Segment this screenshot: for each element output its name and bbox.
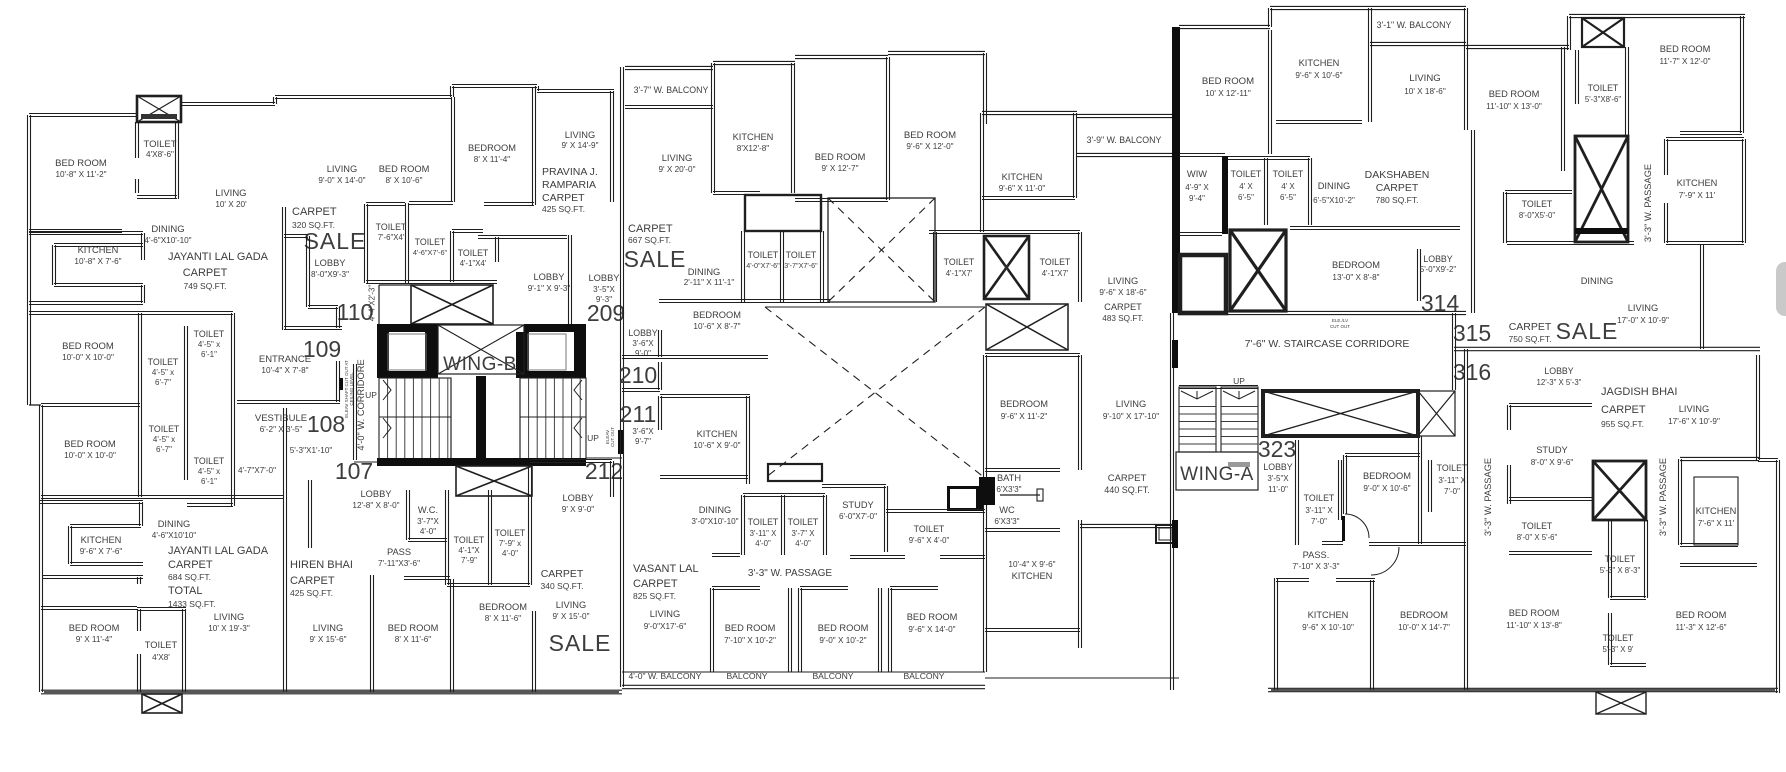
svg-text:BALCONY: BALCONY [726,671,767,681]
svg-text:9'-0" X 10'-6": 9'-0" X 10'-6" [1363,484,1410,493]
svg-text:LOBBY: LOBBY [628,328,657,338]
svg-text:3'-7"X7'-6": 3'-7"X7'-6" [784,261,818,270]
svg-text:WC: WC [999,505,1015,515]
svg-text:6'-1": 6'-1" [201,350,217,359]
svg-text:TOILET: TOILET [1522,199,1553,209]
svg-text:LIVING: LIVING [327,164,357,174]
svg-text:9' X 20'-0": 9' X 20'-0" [659,165,696,174]
svg-text:210: 210 [619,362,657,388]
svg-text:CARPET: CARPET [541,568,584,580]
svg-text:JAGDISH BHAI: JAGDISH BHAI [1601,386,1677,398]
svg-text:10'-8" X 11'-2": 10'-8" X 11'-2" [55,170,106,179]
svg-text:6'-7": 6'-7" [155,378,171,387]
svg-text:315: 315 [1453,320,1491,346]
svg-text:9'-6" X 7'-6": 9'-6" X 7'-6" [80,547,123,556]
svg-text:4'-4"X2'-3": 4'-4"X2'-3" [368,285,377,321]
svg-text:BED ROOM: BED ROOM [904,130,956,141]
svg-text:KITCHEN: KITCHEN [1677,178,1718,188]
svg-text:9'-4": 9'-4" [1189,194,1205,203]
svg-text:4'-5" x: 4'-5" x [198,467,220,476]
svg-text:SALE: SALE [624,246,687,272]
svg-text:TOILET: TOILET [458,248,489,258]
svg-text:3'-11" X: 3'-11" X [1438,476,1466,485]
svg-text:STUDY: STUDY [1536,445,1568,455]
svg-text:LIVING: LIVING [565,130,595,140]
svg-text:6'X3'3": 6'X3'3" [996,485,1021,494]
svg-text:TOILET: TOILET [748,517,779,527]
svg-text:BEDROOM: BEDROOM [693,310,741,320]
svg-text:LIVING: LIVING [214,612,244,622]
svg-text:9'-6" X 10'-10": 9'-6" X 10'-10" [1302,623,1354,632]
svg-text:8'-0" X 5'-6": 8'-0" X 5'-6" [1517,533,1558,542]
svg-text:212: 212 [585,458,623,484]
svg-text:9'-6" X 11'-2": 9'-6" X 11'-2" [1001,412,1048,421]
svg-text:11'-3" X 12'-6": 11'-3" X 12'-6" [1675,623,1726,632]
svg-text:BED ROOM: BED ROOM [1676,610,1727,620]
svg-text:10'-6" X 8'-7": 10'-6" X 8'-7" [693,322,740,331]
svg-text:BED ROOM: BED ROOM [379,164,430,174]
svg-text:3'-6"X: 3'-6"X [632,339,654,348]
svg-text:CARPET: CARPET [168,559,213,571]
svg-text:W.C.: W.C. [418,505,438,515]
svg-text:6'X3'3": 6'X3'3" [994,517,1019,526]
svg-text:TOILET: TOILET [944,257,975,267]
svg-text:17'-6" X 10'-9": 17'-6" X 10'-9" [1668,417,1720,426]
svg-text:LOBBY: LOBBY [360,489,391,499]
svg-text:9' X 14'-9": 9' X 14'-9" [562,141,599,150]
svg-text:CARPET: CARPET [1601,404,1646,416]
svg-text:ELE./LV: ELE./LV [1332,318,1348,323]
svg-text:10'-0" X 14'-7": 10'-0" X 14'-7" [1398,623,1450,632]
svg-text:BEDROOM: BEDROOM [1400,610,1448,620]
svg-text:3'-7" X: 3'-7" X [792,529,816,538]
svg-text:9'-10" X 17'-10": 9'-10" X 17'-10" [1103,412,1159,421]
svg-text:6'-5": 6'-5" [1280,193,1296,202]
svg-text:4'X8'-6": 4'X8'-6" [146,150,174,159]
svg-text:CARPET: CARPET [628,223,673,235]
svg-text:CARPET: CARPET [183,267,228,279]
svg-text:TOILET: TOILET [1603,633,1634,643]
svg-text:3'-7"X: 3'-7"X [417,517,439,526]
svg-text:KITCHEN: KITCHEN [1696,506,1737,516]
svg-text:X: X [1003,263,1009,273]
svg-text:SALE: SALE [549,630,612,656]
svg-text:DAKSHABEN: DAKSHABEN [1365,169,1430,181]
svg-text:3'-11" X: 3'-11" X [750,529,777,538]
svg-text:10'-6" X 9'-0": 10'-6" X 9'-0" [693,441,740,450]
svg-text:11'-7" X 12'-0": 11'-7" X 12'-0" [1659,57,1710,66]
svg-text:CARPET: CARPET [542,192,585,204]
svg-text:9' X 15'-6": 9' X 15'-6" [310,635,347,644]
svg-text:LOBBY: LOBBY [1263,462,1292,472]
svg-text:TOILET: TOILET [454,535,485,545]
svg-text:LOBBY: LOBBY [588,273,619,283]
svg-text:TOILET: TOILET [1588,83,1619,93]
svg-text:LIVING: LIVING [215,188,246,199]
svg-text:TOILET: TOILET [495,528,526,538]
svg-text:4'-5" x: 4'-5" x [153,435,175,444]
svg-text:5'-0"X9'-2": 5'-0"X9'-2" [1420,265,1456,274]
svg-text:109: 109 [303,336,341,362]
svg-text:UP: UP [587,433,599,443]
svg-text:CARPET: CARPET [633,578,678,590]
svg-text:BALCONY: BALCONY [812,671,853,681]
svg-text:BED ROOM: BED ROOM [907,612,958,622]
svg-text:8'-0" X 9'-6": 8'-0" X 9'-6" [1531,458,1574,467]
svg-text:TOILET: TOILET [1273,169,1304,179]
svg-text:WING-A: WING-A [1180,464,1254,485]
svg-text:9'-0" X 14'-0": 9'-0" X 14'-0" [318,176,365,185]
svg-text:5'-3"X8'-6": 5'-3"X8'-6" [1585,95,1621,104]
svg-text:BEDROOM: BEDROOM [1363,471,1411,481]
svg-text:BED ROOM: BED ROOM [725,623,776,633]
svg-text:TOILET: TOILET [1231,169,1262,179]
svg-text:BED ROOM: BED ROOM [55,158,107,169]
svg-text:9' X 11'-4": 9' X 11'-4" [76,635,112,644]
svg-text:6'-0"X7'-0": 6'-0"X7'-0" [839,512,877,521]
svg-text:LIVING: LIVING [1409,73,1440,84]
svg-text:TOILET: TOILET [914,524,945,534]
svg-text:9'-6" X 11'-0": 9'-6" X 11'-0" [999,184,1046,193]
svg-text:10' X 12'-11": 10' X 12'-11" [1205,89,1251,98]
svg-text:11'-0": 11'-0" [1268,485,1288,494]
svg-text:9'-0" X 10'-2": 9'-0" X 10'-2" [819,636,866,645]
svg-text:4'-0": 4'-0" [420,527,436,536]
svg-text:HIREN BHAI: HIREN BHAI [290,559,353,571]
svg-text:6'-5"X10'-2": 6'-5"X10'-2" [1313,196,1355,205]
svg-text:BED ROOM: BED ROOM [62,341,114,352]
svg-text:PASS.: PASS. [1303,550,1330,560]
svg-text:6'-5": 6'-5" [1238,193,1254,202]
svg-text:DINING: DINING [699,505,732,515]
svg-text:9'-7": 9'-7" [635,437,651,446]
svg-text:667 SQ.FT.: 667 SQ.FT. [628,235,671,245]
svg-text:4'-1"X4': 4'-1"X4' [460,259,487,268]
svg-text:3'-11" X: 3'-11" X [1305,506,1333,515]
svg-text:TOILET: TOILET [149,424,180,434]
svg-text:3'-6"X: 3'-6"X [632,427,654,436]
svg-text:3'-3" W. PASSAGE: 3'-3" W. PASSAGE [1643,164,1653,242]
svg-text:4'-0": 4'-0" [502,549,518,558]
svg-text:LIVING: LIVING [1628,303,1658,313]
svg-text:2'-11" X 11'-1": 2'-11" X 11'-1" [684,278,735,287]
svg-text:9'-6" X 10'-6": 9'-6" X 10'-6" [1295,71,1342,80]
svg-text:JAYANTI LAL GADA: JAYANTI LAL GADA [168,545,269,557]
svg-text:316: 316 [1453,359,1491,385]
svg-text:323: 323 [1258,436,1296,462]
svg-text:3'-7" W. BALCONY: 3'-7" W. BALCONY [634,85,709,95]
svg-text:SALE: SALE [304,228,367,254]
svg-text:3'-3" W. PASSAGE: 3'-3" W. PASSAGE [1658,458,1668,536]
svg-text:BED ROOM: BED ROOM [1202,76,1254,87]
svg-text:KITCHEN: KITCHEN [1012,571,1053,581]
svg-text:955 SQ.FT.: 955 SQ.FT. [1601,419,1644,429]
svg-text:DINING: DINING [151,224,184,235]
svg-text:10'-4" X 7'-8": 10'-4" X 7'-8" [261,366,308,375]
svg-text:10' X 20': 10' X 20' [215,200,247,209]
svg-text:RAMPARIA: RAMPARIA [542,179,596,191]
svg-text:4'-0" W. BALCONY: 4'-0" W. BALCONY [629,671,702,681]
svg-text:9'-1" X 9'-3": 9'-1" X 9'-3" [528,284,571,293]
svg-text:108: 108 [307,411,345,437]
svg-text:9' X 9'-0": 9' X 9'-0" [562,505,595,514]
svg-text:CUT OUT: CUT OUT [1330,324,1350,329]
svg-text:4'X8': 4'X8' [152,653,170,662]
svg-text:LIVING: LIVING [313,623,343,633]
svg-text:4'-6"X10'-10": 4'-6"X10'-10" [144,236,191,245]
svg-text:LOBBY: LOBBY [533,272,564,282]
svg-text:4'-0"X7'-6": 4'-0"X7'-6" [746,261,780,270]
svg-text:BEDROOM: BEDROOM [468,143,516,153]
svg-text:TOILET: TOILET [148,357,179,367]
svg-text:750 SQ.FT.: 750 SQ.FT. [1509,334,1552,344]
svg-text:7'-10" X 3'-3": 7'-10" X 3'-3" [1292,562,1339,571]
svg-text:LOBBY: LOBBY [1544,366,1573,376]
svg-text:10' X 18'-6": 10' X 18'-6" [1404,87,1446,96]
svg-text:TOILET: TOILET [788,517,819,527]
svg-text:BED ROOM: BED ROOM [1509,608,1560,618]
svg-text:7'-6" X 11': 7'-6" X 11' [1698,519,1735,528]
svg-text:3'-3" W. PASSAGE: 3'-3" W. PASSAGE [1483,458,1493,536]
svg-text:TOILET: TOILET [748,250,779,260]
svg-text:8' X 11'-6": 8' X 11'-6" [485,614,521,623]
svg-text:7'-9": 7'-9" [461,556,477,565]
svg-text:7'-0": 7'-0" [1444,487,1460,496]
svg-text:3'-5"X: 3'-5"X [593,285,615,294]
svg-text:8' X 11'-4": 8' X 11'-4" [474,155,510,164]
svg-text:5'-3"X1'-10": 5'-3"X1'-10" [290,446,333,455]
svg-text:11'-10" X 13'-8": 11'-10" X 13'-8" [1506,621,1562,630]
svg-text:9' X 15'-0": 9' X 15'-0" [553,612,590,621]
svg-text:4'-9" X: 4'-9" X [1185,183,1209,192]
svg-text:KITCHEN: KITCHEN [81,535,122,545]
svg-text:BED ROOM: BED ROOM [388,623,439,633]
svg-text:10'-8" X 7'-6": 10'-8" X 7'-6" [74,257,121,266]
svg-text:12'-8" X 8'-0": 12'-8" X 8'-0" [352,501,399,510]
svg-text:9'-6" X 12'-0": 9'-6" X 12'-0" [906,142,953,151]
svg-text:TOILET: TOILET [143,139,176,150]
svg-text:SALE: SALE [1556,318,1619,344]
svg-text:9'-6" X 14'-0": 9'-6" X 14'-0" [908,625,955,634]
svg-text:KITCHEN: KITCHEN [1299,58,1340,68]
svg-text:STUDY: STUDY [842,500,874,510]
svg-text:TOILET: TOILET [1605,554,1636,564]
svg-text:3'-0"X10'-10": 3'-0"X10'-10" [691,517,738,526]
svg-text:3'-5"X: 3'-5"X [1267,474,1289,483]
svg-text:749 SQ.FT.: 749 SQ.FT. [184,281,227,291]
svg-text:825 SQ.FT.: 825 SQ.FT. [633,591,676,601]
svg-text:440 SQ.FT.: 440 SQ.FT. [1104,485,1150,495]
svg-text:BEDROOM: BEDROOM [1332,260,1380,270]
svg-text:DINING: DINING [1581,276,1614,286]
svg-text:LIVING: LIVING [556,600,586,610]
svg-text:7'-9" X 11': 7'-9" X 11' [1679,191,1716,200]
svg-text:7'-0": 7'-0" [1311,517,1327,526]
svg-text:KITCHEN: KITCHEN [733,132,774,142]
svg-text:BED ROOM: BED ROOM [69,623,120,633]
svg-text:7'-6"X4': 7'-6"X4' [378,233,405,242]
svg-text:7'-6" W. STAIRCASE CORRIDORE: 7'-6" W. STAIRCASE CORRIDORE [1245,338,1410,350]
svg-text:TOILET: TOILET [194,329,225,339]
svg-text:11'-10" X 13'-0": 11'-10" X 13'-0" [1486,102,1542,111]
svg-text:209: 209 [587,300,625,326]
svg-text:6'-2" X 3'-5": 6'-2" X 3'-5" [260,425,303,434]
svg-text:483 SQ.FT.: 483 SQ.FT. [1102,314,1143,323]
svg-text:PRAVINA J.: PRAVINA J. [542,166,598,178]
svg-text:7'-11"X3'-6": 7'-11"X3'-6" [378,559,420,568]
svg-text:CARPET: CARPET [1376,182,1419,194]
svg-text:8' X 11'-6": 8' X 11'-6" [395,635,431,644]
svg-text:BEDROOM: BEDROOM [479,602,527,612]
svg-text:4'-7"X7'-0": 4'-7"X7'-0" [238,466,276,475]
svg-text:211: 211 [620,401,657,427]
svg-text:DINING: DINING [158,519,191,529]
svg-text:9'-0": 9'-0" [635,349,651,358]
svg-text:7'-9" x: 7'-9" x [499,539,521,548]
svg-text:DINING: DINING [1318,181,1351,191]
svg-text:5'-3" X 8'-3": 5'-3" X 8'-3" [1600,566,1641,575]
svg-text:3'-3" W. PASSAGE: 3'-3" W. PASSAGE [748,568,833,579]
svg-text:4'-1"X7': 4'-1"X7' [946,269,973,278]
svg-text:BED ROOM: BED ROOM [818,623,869,633]
svg-text:LIVING: LIVING [1116,399,1146,409]
svg-text:3'-9" W. BALCONY: 3'-9" W. BALCONY [1087,135,1162,145]
svg-text:9'-6" X 18'-6": 9'-6" X 18'-6" [1099,288,1146,297]
svg-text:4'-5" x: 4'-5" x [152,368,174,377]
svg-text:TOILET: TOILET [194,456,225,466]
svg-text:WIW: WIW [1187,169,1207,179]
svg-text:9'-6" X 4'-0": 9'-6" X 4'-0" [909,536,950,545]
svg-text:12'-3" X 5'-3": 12'-3" X 5'-3" [1537,378,1582,387]
svg-text:780 SQ.FT.: 780 SQ.FT. [1376,195,1419,205]
svg-text:LOBBY: LOBBY [1423,254,1452,264]
svg-text:13'-0" X 8'-8": 13'-0" X 8'-8" [1332,273,1379,282]
svg-text:KITCHEN: KITCHEN [697,429,738,439]
svg-text:PASS: PASS [387,547,411,557]
svg-text:TOILET: TOILET [1304,493,1335,503]
svg-text:4' X: 4' X [1239,182,1253,191]
svg-text:10'-4" X 9'-6": 10'-4" X 9'-6" [1008,560,1055,569]
svg-text:UP: UP [1233,376,1245,386]
svg-text:4'-6"X10'10": 4'-6"X10'10" [152,531,197,540]
svg-text:BALCONY: BALCONY [903,671,944,681]
svg-text:TOILET: TOILET [415,237,446,247]
svg-text:CARPET: CARPET [1104,302,1142,312]
svg-text:4'-0": 4'-0" [755,539,771,548]
svg-text:CARPET: CARPET [292,206,337,218]
svg-text:TOILET: TOILET [376,222,407,232]
svg-text:425 SQ.FT.: 425 SQ.FT. [290,588,333,598]
svg-text:10'-0" X 10'-0": 10'-0" X 10'-0" [64,451,116,460]
svg-text:8'-0"X9'-3": 8'-0"X9'-3" [311,270,349,279]
svg-text:TOTAL: TOTAL [168,585,202,597]
svg-text:LIVING: LIVING [1679,404,1709,414]
svg-text:425 SQ.FT.: 425 SQ.FT. [542,204,585,214]
svg-text:BED ROOM: BED ROOM [815,152,866,162]
svg-text:TOILET: TOILET [1522,521,1553,531]
svg-text:314: 314 [1421,290,1460,316]
svg-text:KITCHEN: KITCHEN [78,245,119,255]
svg-text:8' X 10'-6": 8' X 10'-6" [386,176,423,185]
svg-text:LIVING: LIVING [650,609,680,619]
svg-text:LIVING: LIVING [662,153,692,163]
svg-text:4'-1"X7': 4'-1"X7' [1042,269,1069,278]
svg-text:9' X 12'-7": 9' X 12'-7" [822,164,859,173]
svg-text:VASANT LAL: VASANT LAL [633,563,699,575]
svg-text:CARPET: CARPET [1108,473,1147,484]
svg-text:6'-1": 6'-1" [201,477,217,486]
svg-text:BEDROOM: BEDROOM [1000,399,1048,409]
svg-text:KITCHEN: KITCHEN [1308,610,1349,620]
svg-text:8'-0"X5'-0": 8'-0"X5'-0" [1519,211,1555,220]
svg-text:TOILET: TOILET [786,250,817,260]
svg-text:CARPET: CARPET [290,575,335,587]
svg-text:684 SQ.FT.: 684 SQ.FT. [168,572,211,582]
svg-text:CUT OUT: CUT OUT [610,427,615,447]
svg-text:WING-B: WING-B [443,354,517,375]
svg-text:BED ROOM: BED ROOM [1660,44,1711,54]
svg-text:4'-1"X: 4'-1"X [458,546,480,555]
svg-text:LOBBY: LOBBY [562,493,593,503]
svg-text:KITCHEN: KITCHEN [1002,172,1043,182]
svg-text:10' X 19'-3": 10' X 19'-3" [208,624,250,633]
svg-text:4'-5" x: 4'-5" x [198,340,220,349]
svg-text:4'-0": 4'-0" [795,539,811,548]
svg-text:3'-1" W. BALCONY: 3'-1" W. BALCONY [1377,20,1452,30]
svg-text:8'X12'-8": 8'X12'-8" [737,144,770,153]
svg-text:4'-0" W. CORRIDORE: 4'-0" W. CORRIDORE [356,359,366,450]
svg-text:10'-0" X 10'-0": 10'-0" X 10'-0" [62,353,114,362]
svg-text:DINING: DINING [688,267,721,277]
svg-text:4' X: 4' X [1281,182,1295,191]
svg-text:CARPET: CARPET [1509,321,1552,333]
svg-text:LOBBY: LOBBY [314,258,345,268]
svg-text:6'-7": 6'-7" [156,445,172,454]
svg-text:7'-10" X 10'-2": 7'-10" X 10'-2" [724,636,776,645]
svg-text:BATH: BATH [997,473,1021,483]
svg-text:9'-0"X17'-6": 9'-0"X17'-6" [644,622,687,631]
svg-text:TOILET: TOILET [1040,257,1071,267]
svg-text:BED ROOM: BED ROOM [1489,89,1540,99]
svg-text:340 SQ.FT.: 340 SQ.FT. [541,581,584,591]
svg-text:BED ROOM: BED ROOM [64,439,116,450]
svg-text:UP: UP [365,390,377,400]
svg-text:VESTIBULE: VESTIBULE [255,413,307,424]
svg-text:5'-3" X 9': 5'-3" X 9' [1603,645,1634,654]
svg-text:JAYANTI LAL GADA: JAYANTI LAL GADA [168,251,269,263]
svg-text:4'-6"X7'-6": 4'-6"X7'-6" [413,248,448,257]
svg-text:LIVING: LIVING [1108,276,1138,286]
svg-text:17'-0" X 10'-9": 17'-0" X 10'-9" [1617,316,1669,325]
svg-text:TOILET: TOILET [1437,463,1468,473]
svg-text:TOILET: TOILET [145,640,178,650]
